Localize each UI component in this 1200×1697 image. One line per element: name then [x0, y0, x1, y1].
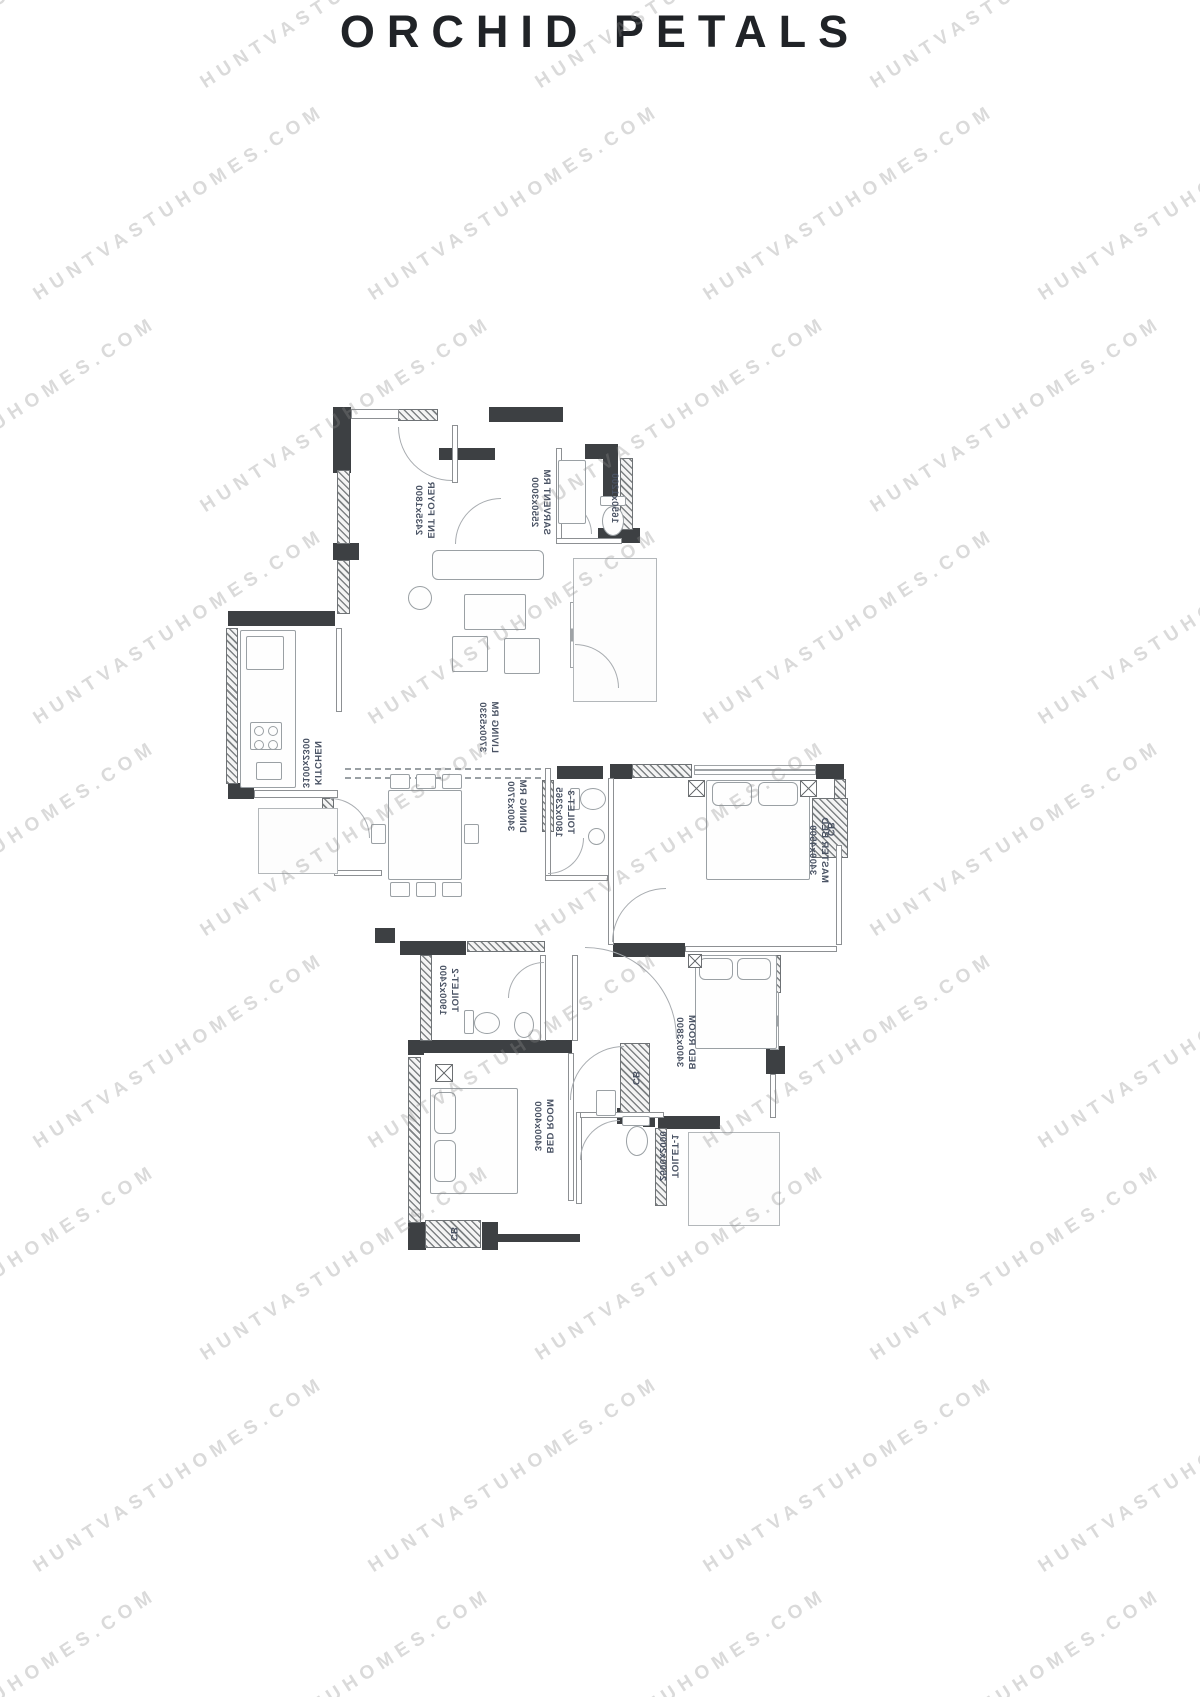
- wall-hatch: [337, 560, 350, 614]
- dining-chair: [390, 882, 410, 897]
- room-label: CB: [405, 1186, 501, 1282]
- window: [694, 765, 816, 775]
- room-name: TOILET-3: [564, 790, 576, 834]
- page: { "title": "ORCHID PETALS", "watermark":…: [0, 0, 1200, 1697]
- room-label: CB: [782, 781, 878, 877]
- room-label: TOILET-12500x2000: [620, 1108, 716, 1204]
- floor-plan: SARVENT RM2550x30001650x1200ENT FOYER243…: [0, 0, 1200, 1697]
- room-name: TOILET-2: [448, 968, 460, 1012]
- wall-dark: [766, 1046, 785, 1074]
- room-dims: 1800x2365: [552, 787, 564, 837]
- wall-thin: [572, 955, 578, 1041]
- fridge: [246, 636, 284, 670]
- dining-table: [388, 790, 462, 880]
- dining-chair: [416, 882, 436, 897]
- armchair: [452, 636, 488, 672]
- wall-thin: [545, 875, 608, 881]
- room-name: BED ROOM: [685, 1015, 697, 1070]
- wall-thin: [351, 409, 399, 419]
- pillow: [737, 958, 771, 980]
- room-name: CB: [629, 1071, 641, 1085]
- wall-hatch: [226, 628, 238, 784]
- wall-dark: [333, 407, 351, 473]
- wall-thin: [334, 870, 382, 876]
- side-table-icon: [435, 1064, 453, 1082]
- dining-chair: [442, 774, 462, 789]
- wall-dark: [228, 611, 335, 626]
- room-dims: 3100x2300: [299, 738, 311, 788]
- armchair: [504, 638, 540, 674]
- dining-chair: [416, 774, 436, 789]
- wall-hatch: [632, 764, 692, 778]
- room-dims: 1650x1200: [608, 473, 620, 523]
- room-label: KITCHEN3100x2300: [263, 715, 359, 811]
- wall-thin: [770, 1074, 776, 1118]
- side-table-icon: [688, 780, 705, 797]
- wall-dark: [816, 764, 844, 779]
- room-dims: 1900x2400: [436, 965, 448, 1015]
- coffee-table: [464, 594, 526, 630]
- room-label: ENT FOYER2435x1800: [376, 462, 472, 558]
- wall-dark: [375, 928, 395, 943]
- pillow: [434, 1140, 456, 1182]
- pillow: [712, 782, 752, 806]
- room-label: TOILET-31800x2365: [516, 764, 612, 860]
- wall-hatch: [337, 470, 350, 544]
- room-dims: 2500x2000: [656, 1131, 668, 1181]
- wall-dark: [420, 1040, 572, 1053]
- wall-dark: [333, 543, 359, 560]
- room-label: BED ROOM3400x4000: [495, 1078, 591, 1174]
- wall-dark: [489, 407, 563, 422]
- washbasin-icon: [408, 586, 432, 610]
- room-label: TOILET-21900x2400: [400, 942, 496, 1038]
- door-arc-icon: [508, 962, 544, 998]
- room-name: TOILET-1: [668, 1134, 680, 1178]
- wall-thin: [336, 628, 342, 712]
- wall-hatch: [398, 409, 438, 421]
- side-table-icon: [688, 954, 702, 968]
- room-name: KITCHEN: [311, 741, 323, 785]
- room-name: LIVING RM: [488, 701, 500, 753]
- wall-dark: [408, 1040, 424, 1055]
- room-dims: 3400x3700: [504, 781, 516, 831]
- dining-chair: [371, 824, 386, 844]
- room-name: ENT FOYER: [424, 481, 436, 538]
- wall-dark: [498, 1234, 580, 1242]
- door-arc-icon: [612, 888, 666, 942]
- room-dims: 2550x3000: [528, 477, 540, 527]
- wall-dark: [610, 764, 632, 779]
- room-name: SARVENT RM: [540, 469, 552, 535]
- room-name: CB: [824, 822, 836, 836]
- washbasin-icon: [514, 1012, 534, 1038]
- dining-chair: [390, 774, 410, 789]
- dining-chair: [442, 882, 462, 897]
- balcony: [258, 808, 338, 874]
- room-dims: 3400x4000: [531, 1101, 543, 1151]
- room-name: CB: [447, 1227, 459, 1241]
- room-dims: 2435x1800: [412, 485, 424, 535]
- pillow: [699, 958, 733, 980]
- room-dims: 3700x5330: [476, 702, 488, 752]
- room-label: 1650x1200: [566, 450, 662, 546]
- room-name: BED ROOM: [543, 1099, 555, 1154]
- wall-thin: [685, 946, 837, 952]
- pillow: [434, 1092, 456, 1134]
